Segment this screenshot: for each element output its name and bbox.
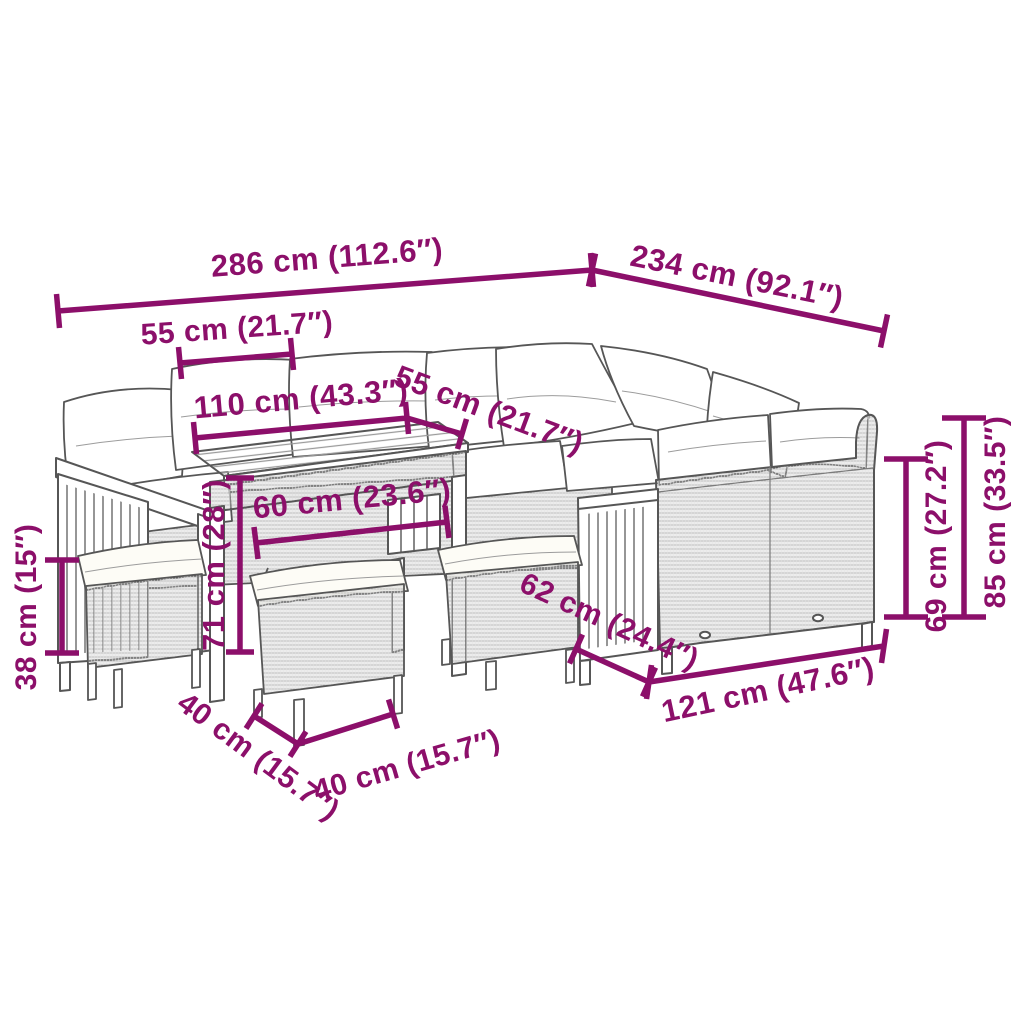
dim-line-stool-width (298, 700, 398, 745)
dim-label-back-height: 69 cm (27.2″) (920, 440, 954, 633)
dim-label-total-height: 85 cm (33.5″) (979, 416, 1013, 609)
dim-label-stool-height: 38 cm (15″) (10, 524, 44, 691)
dim-line-stool-height (45, 560, 79, 653)
dimension-diagram: 286 cm (112.6″) 234 cm (92.1″) 55 cm (21… (0, 0, 1024, 1024)
dimension-lines (0, 0, 1024, 1024)
dim-label-table-height: 71 cm (28″) (196, 479, 232, 651)
dim-line-seat-width-corner (407, 418, 467, 449)
